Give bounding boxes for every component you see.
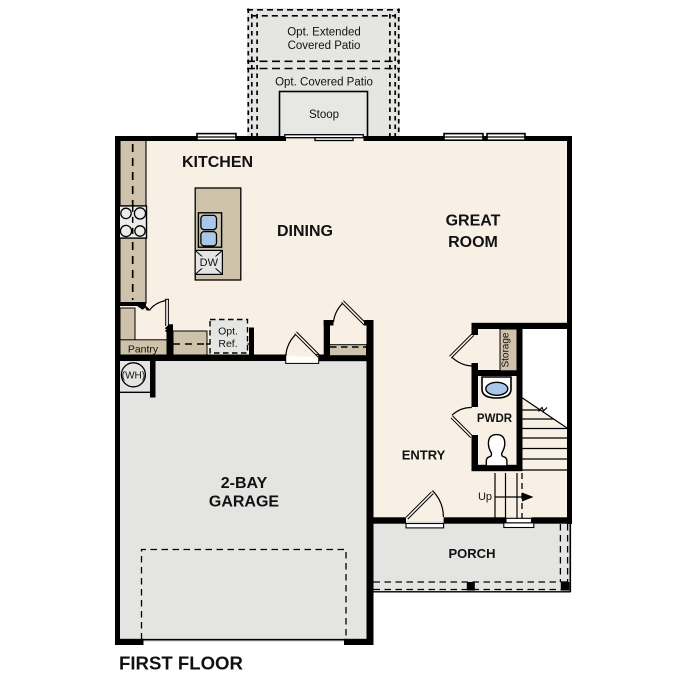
svg-text:Storage: Storage xyxy=(501,332,512,367)
svg-text:(WH): (WH) xyxy=(122,370,145,381)
svg-text:KITCHEN: KITCHEN xyxy=(182,154,253,171)
svg-text:GREAT: GREAT xyxy=(446,213,501,230)
svg-text:2-BAY: 2-BAY xyxy=(221,475,268,492)
svg-text:DW: DW xyxy=(200,257,219,269)
svg-text:Ref.: Ref. xyxy=(218,338,237,350)
svg-text:Opt. Extended: Opt. Extended xyxy=(287,27,361,39)
svg-text:Covered Patio: Covered Patio xyxy=(288,40,361,52)
svg-text:Pantry: Pantry xyxy=(128,344,159,356)
svg-text:PORCH: PORCH xyxy=(449,546,496,561)
svg-text:GARAGE: GARAGE xyxy=(209,493,280,510)
svg-text:Stoop: Stoop xyxy=(309,109,339,121)
svg-text:ENTRY: ENTRY xyxy=(402,448,446,463)
svg-text:DINING: DINING xyxy=(277,223,333,240)
svg-text:PWDR: PWDR xyxy=(477,413,513,425)
svg-text:Opt. Covered Patio: Opt. Covered Patio xyxy=(275,77,373,89)
svg-text:Up: Up xyxy=(478,491,492,503)
svg-text:ROOM: ROOM xyxy=(448,234,498,251)
svg-text:Opt.: Opt. xyxy=(218,326,238,338)
svg-text:FIRST FLOOR: FIRST FLOOR xyxy=(119,653,244,674)
